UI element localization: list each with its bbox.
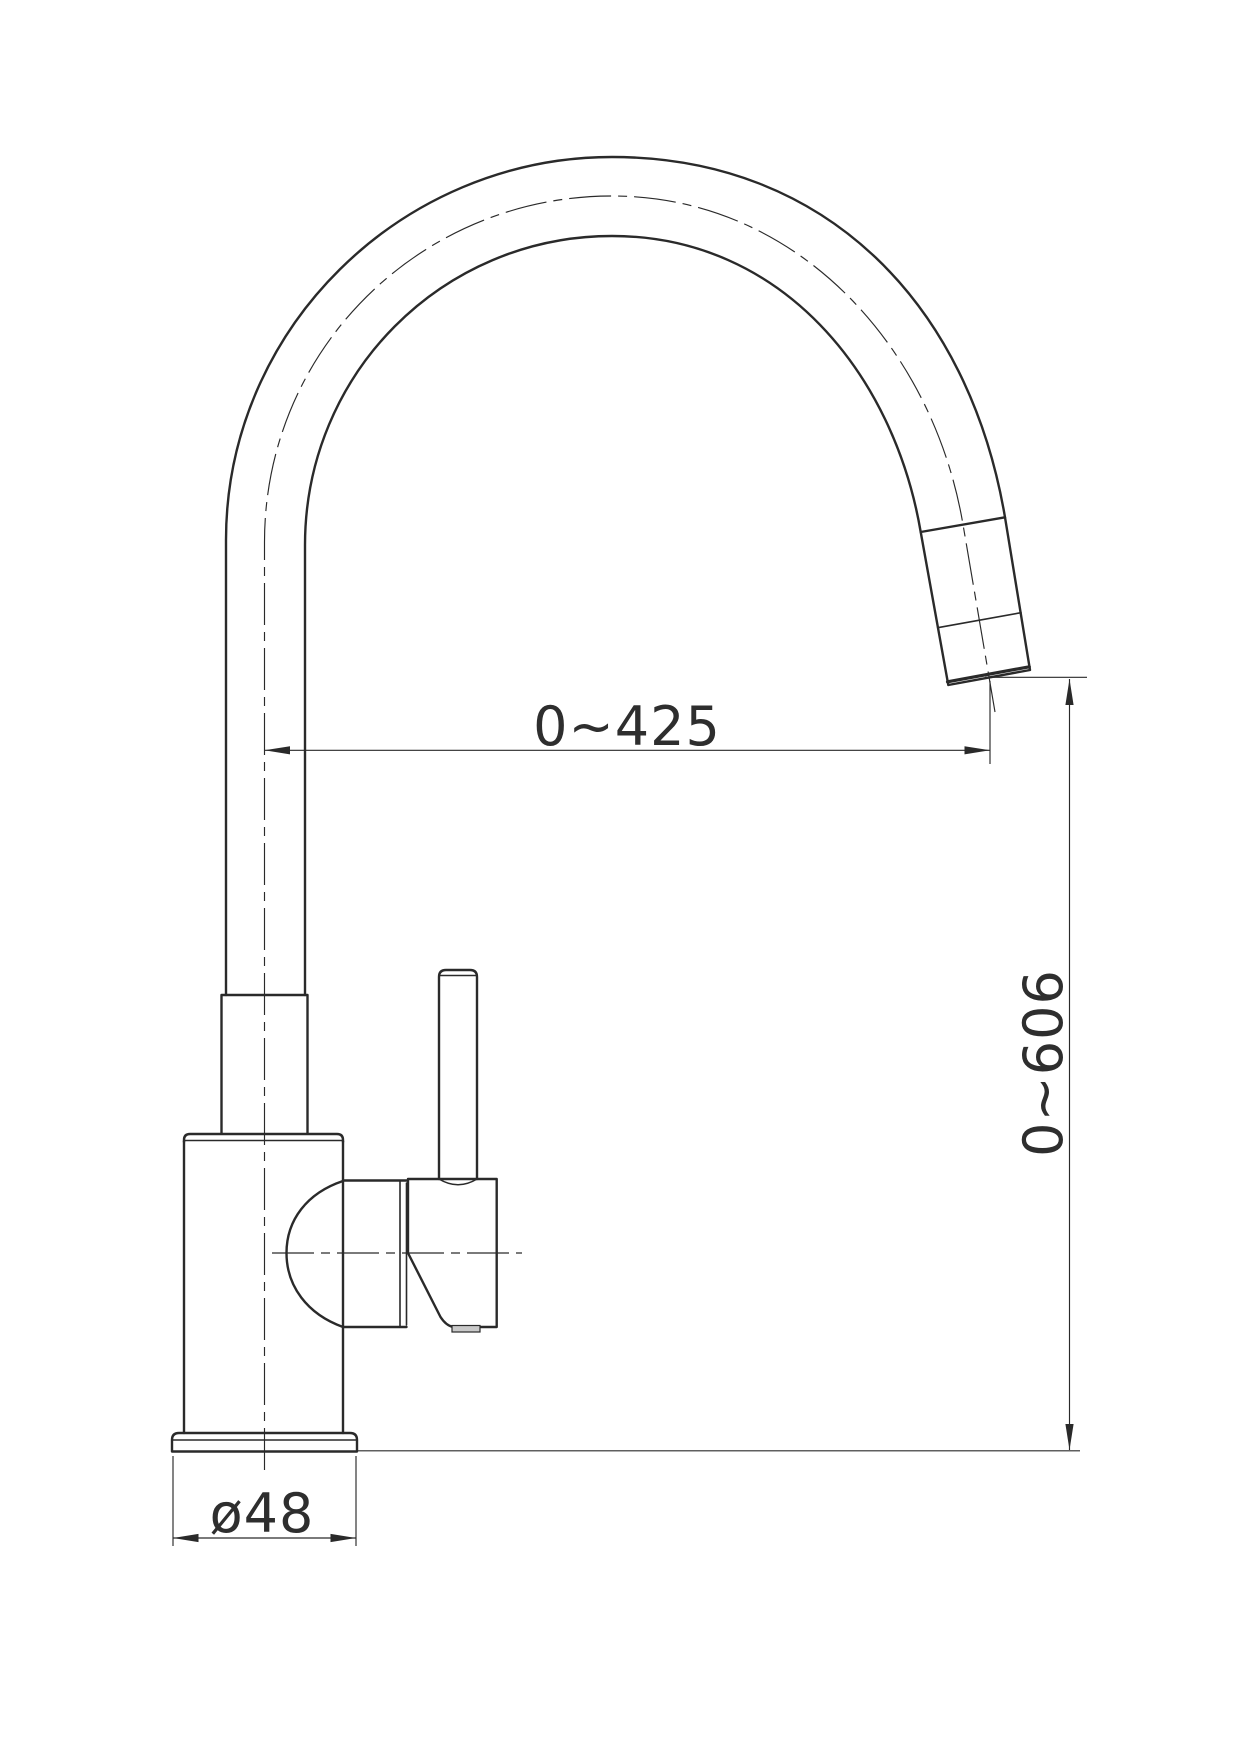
technical-drawing-page: 0~425 0~606 ø48 bbox=[0, 0, 1241, 1754]
nozzle-tip-edge bbox=[948, 667, 1030, 682]
dim-reach-arrow-right bbox=[965, 746, 991, 754]
handle-lever bbox=[439, 970, 477, 1179]
nozzle-body bbox=[921, 517, 1030, 685]
dim-base-label: ø48 bbox=[210, 1482, 315, 1545]
handle-block-detail bbox=[452, 1326, 480, 1333]
centerlines bbox=[265, 196, 996, 1470]
dimension-spout-height: 0~606 bbox=[357, 677, 1087, 1451]
cartridge-ring bbox=[400, 1181, 407, 1328]
faucet-outline bbox=[172, 157, 1030, 1452]
faucet-technical-drawing: 0~425 0~606 ø48 bbox=[0, 0, 1241, 1754]
spout-inner-wall bbox=[305, 236, 921, 995]
cartridge-transition-edges bbox=[343, 1181, 407, 1328]
dim-height-arrow-bottom bbox=[1065, 1424, 1073, 1450]
dim-reach-label: 0~425 bbox=[533, 695, 721, 758]
nozzle-divider-line bbox=[938, 613, 1021, 628]
spout-outer-wall bbox=[226, 157, 1005, 995]
dimension-spout-reach: 0~425 bbox=[265, 681, 991, 764]
dim-base-arrow-left bbox=[173, 1534, 199, 1542]
cartridge-transition-curve bbox=[287, 1181, 344, 1327]
centerline-spout bbox=[265, 196, 996, 1470]
dim-height-label: 0~606 bbox=[1012, 969, 1075, 1157]
dim-base-arrow-right bbox=[331, 1534, 357, 1542]
dim-reach-arrow-left bbox=[265, 746, 291, 754]
dim-height-arrow-top bbox=[1065, 679, 1073, 705]
faucet-body-sides bbox=[184, 1141, 343, 1433]
